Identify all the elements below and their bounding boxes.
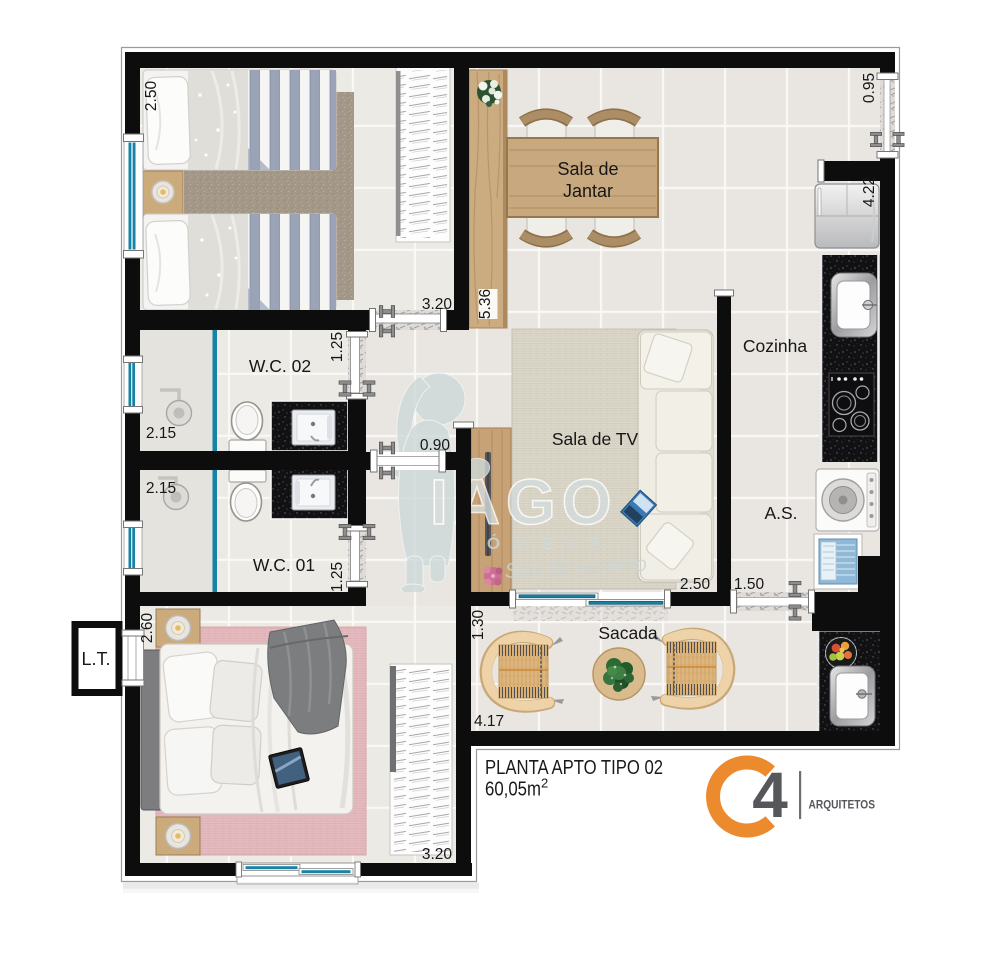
svg-text:5.36: 5.36 [477, 289, 494, 319]
svg-text:1.25: 1.25 [329, 332, 346, 362]
svg-text:4.17: 4.17 [474, 713, 504, 730]
svg-text:W.C. 02: W.C. 02 [249, 356, 311, 376]
svg-text:60,05m: 60,05m [485, 779, 541, 801]
svg-text:Cozinha: Cozinha [743, 336, 807, 356]
svg-text:4.22: 4.22 [861, 177, 878, 207]
svg-text:4: 4 [752, 759, 788, 831]
svg-text:Sala de: Sala de [557, 159, 618, 179]
svg-text:ARQUITETOS: ARQUITETOS [809, 800, 876, 812]
svg-text:PLANTA APTO TIPO 02: PLANTA APTO TIPO 02 [485, 757, 663, 779]
svg-text:2.15: 2.15 [146, 425, 176, 442]
svg-text:Sacada: Sacada [598, 623, 658, 643]
svg-text:3.20: 3.20 [422, 846, 453, 863]
svg-text:0.95: 0.95 [861, 73, 878, 103]
svg-text:2.50: 2.50 [143, 81, 160, 112]
svg-text:A.S.: A.S. [764, 503, 797, 523]
svg-text:3.20: 3.20 [422, 296, 453, 313]
svg-text:L.T.: L.T. [81, 649, 110, 669]
svg-text:2.60: 2.60 [139, 613, 156, 644]
svg-text:W.C. 01: W.C. 01 [253, 555, 315, 575]
svg-text:0.90: 0.90 [420, 437, 451, 454]
svg-text:1.30: 1.30 [470, 610, 487, 641]
svg-text:1.25: 1.25 [329, 562, 346, 592]
svg-text:Jantar: Jantar [563, 181, 613, 201]
svg-text:2.15: 2.15 [146, 480, 176, 497]
svg-text:1.50: 1.50 [734, 576, 765, 593]
svg-text:2.50: 2.50 [680, 576, 711, 593]
svg-text:Sala de TV: Sala de TV [552, 429, 639, 449]
svg-text:2: 2 [541, 776, 548, 791]
